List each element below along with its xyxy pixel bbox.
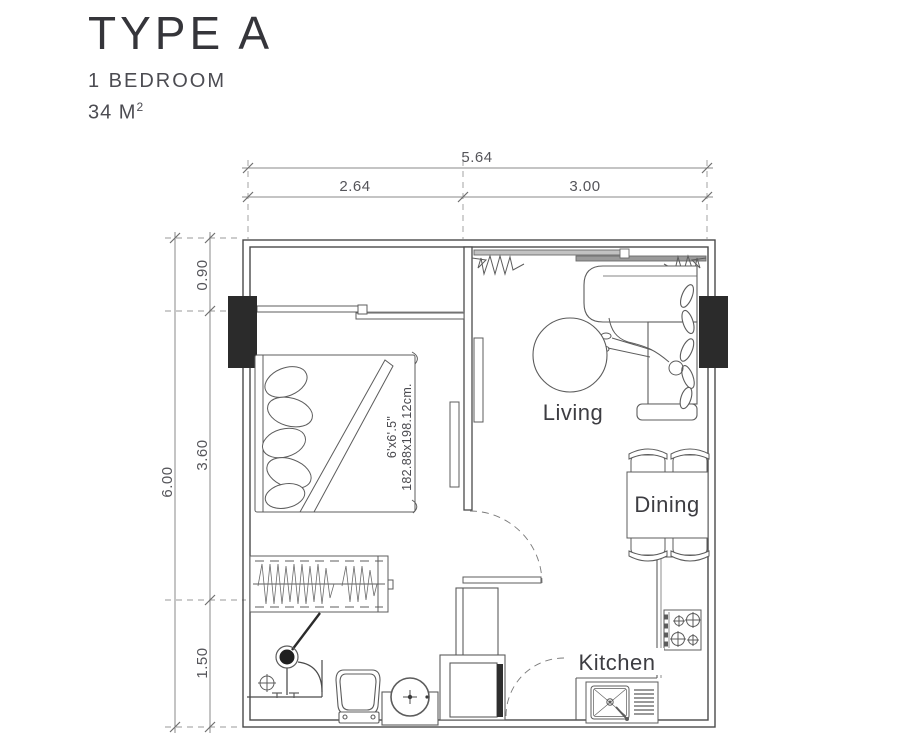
floor-drain (258, 674, 276, 692)
toilet (336, 670, 380, 723)
dim-total-width: 5.64 (461, 149, 492, 166)
bathroom (247, 613, 438, 725)
dim-height-middle: 3.60 (194, 439, 211, 470)
dim-width-right: 3.00 (569, 178, 600, 195)
dim-total-height: 6.00 (159, 466, 176, 497)
kitchen: Kitchen (572, 557, 708, 723)
hall-door-swing (506, 658, 564, 716)
column-right (699, 296, 728, 368)
living-label: Living (543, 400, 603, 425)
dining-label: Dining (634, 492, 699, 517)
kitchen-label: Kitchen (579, 650, 656, 675)
column-left (228, 296, 257, 368)
living: Living (533, 266, 697, 425)
floorplan-page: TYPE A 1 BEDROOM 34 M2 (0, 0, 900, 750)
bedroom-door-swing (470, 511, 542, 583)
bed-size-imperial: 6'x6'.5" (385, 416, 399, 458)
shower-arm (292, 613, 320, 650)
dining: Dining (627, 449, 709, 561)
vanity-basin (382, 678, 438, 725)
bathroom-door-leaf (463, 577, 541, 583)
partition-wall (464, 247, 472, 510)
duct-shaft (440, 588, 505, 720)
dimension-extension-lines (165, 160, 707, 727)
dim-width-left: 2.64 (339, 178, 370, 195)
coffee-table (533, 318, 607, 392)
kitchen-sink (586, 682, 658, 723)
dim-height-bottom: 1.50 (194, 647, 211, 678)
stove (664, 610, 701, 650)
bed-size-metric: 182.88x198.12cm. (400, 383, 414, 491)
floorplan-drawing: 5.64 2.64 3.00 6.00 0.90 3.60 1.50 (0, 0, 900, 750)
dimension-lines (170, 163, 713, 733)
bedroom-sliding-window (250, 305, 464, 319)
shower-enclosure (247, 660, 322, 697)
dim-height-top: 0.90 (194, 259, 211, 290)
living-sliding-door (474, 249, 706, 261)
wardrobe (250, 556, 393, 612)
shower-head (276, 646, 298, 695)
drainboard-lines (634, 690, 654, 714)
